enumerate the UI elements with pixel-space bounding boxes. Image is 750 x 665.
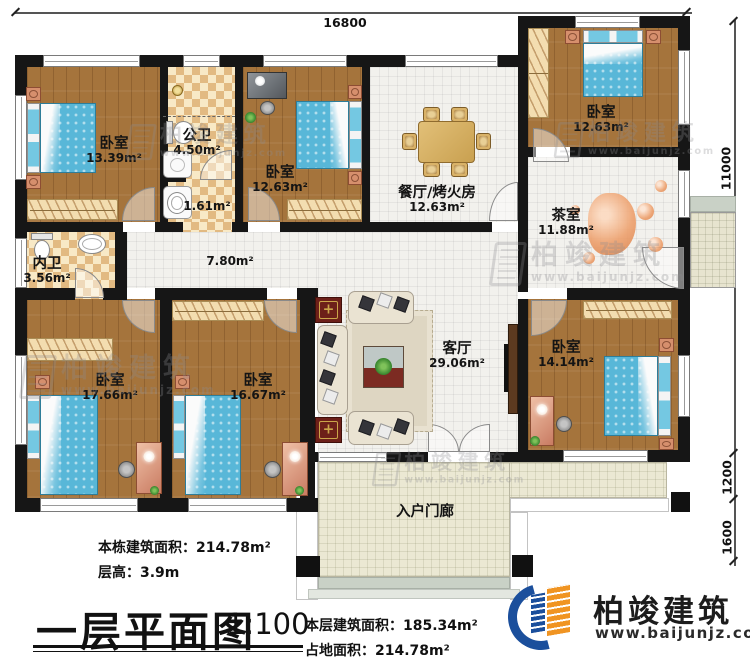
tea-room-decor: [655, 180, 667, 192]
wardrobe: [172, 301, 264, 321]
plant: [150, 486, 159, 495]
floor-side-balcony: [690, 212, 736, 288]
logo-building-blue-icon: [531, 593, 545, 633]
speaker-cabinet: [315, 297, 342, 323]
window: [43, 55, 140, 67]
watermark: 柏竣建筑 www.baijunjz.com: [492, 242, 686, 286]
top-dimension-line: [15, 12, 692, 14]
watermark-site: www.baijunjz.com: [160, 146, 287, 160]
bed-headboard: [583, 30, 643, 43]
plant: [245, 112, 256, 123]
chair: [260, 101, 275, 115]
watermark-logo-icon: [19, 355, 57, 399]
brand-logo: 柏竣建筑 www.baijunjz.com: [505, 572, 740, 662]
desk: [136, 442, 162, 494]
room-area: 3.56m²: [12, 272, 82, 285]
porch-front-label: 1600: [720, 517, 735, 559]
room-name: 茶室: [511, 208, 621, 224]
room-name: 内卫: [12, 256, 82, 272]
watermark-site: www.baijunjz.com: [531, 269, 686, 286]
room-label-hallway: 7.80m²: [175, 255, 285, 268]
window: [263, 55, 347, 67]
room-area: 12.63m²: [225, 181, 335, 194]
nightstand: [646, 30, 661, 44]
room-label-tea-room: 茶室 11.88m²: [511, 208, 621, 238]
wall: [232, 222, 248, 232]
room-area: 14.14m²: [511, 356, 621, 369]
dining-table: [418, 121, 475, 163]
watermark: 柏竣建筑 www.baijunjz.com: [556, 122, 715, 158]
wall: [155, 222, 183, 232]
floor-area-text: 本层建筑面积：185.34m²: [305, 615, 478, 635]
room-label-bedroom-tm: 卧室 12.63m²: [225, 165, 335, 195]
watermark-site: www.baijunjz.com: [61, 382, 216, 399]
shower-head-icon: [172, 85, 183, 96]
room-label-porch: 入户门廊: [370, 504, 480, 520]
wall: [567, 288, 690, 300]
title-underline: [33, 645, 303, 652]
window: [575, 16, 640, 28]
balcony-step: [690, 196, 736, 212]
watermark-logo-icon: [553, 122, 584, 158]
dining-chair: [402, 133, 417, 150]
porch-column: [296, 556, 320, 577]
watermark-name: 柏竣建筑: [531, 242, 686, 269]
window: [188, 498, 287, 512]
watermark: 柏竣建筑 www.baijunjz.com: [374, 452, 525, 486]
window: [678, 355, 690, 417]
window: [40, 498, 138, 512]
wall: [15, 222, 123, 232]
porch-depth-label: 1200: [720, 457, 735, 499]
room-label-bedroom-bm: 卧室 16.67m²: [203, 373, 313, 403]
wardrobe: [287, 199, 362, 220]
wall: [15, 288, 75, 300]
room-name: 客厅: [402, 341, 512, 357]
room-name: 餐厅/烤火房: [377, 185, 497, 201]
bed-headboard: [658, 356, 671, 436]
floor-plan-canvas: 16800 11000 1200 1600: [0, 0, 750, 665]
bed-headboard: [173, 395, 185, 459]
watermark-site: www.baijunjz.com: [404, 473, 525, 486]
wall: [280, 222, 370, 232]
room-label-inner-bath: 内卫 3.56m²: [12, 256, 82, 286]
tea-room-decor: [637, 203, 654, 220]
watermark-name: 柏竣建筑: [160, 124, 287, 146]
room-name: 卧室: [225, 165, 335, 181]
nightstand: [26, 175, 41, 189]
watermark-logo-icon: [489, 242, 527, 286]
coffee-table-plant: [375, 358, 392, 375]
nightstand: [659, 338, 674, 352]
porch-step: [318, 577, 510, 589]
chair: [118, 461, 135, 478]
wall: [370, 222, 492, 232]
speaker-cabinet: [315, 417, 342, 443]
dining-chair: [451, 107, 468, 122]
dining-chair: [423, 107, 440, 122]
nightstand: [659, 438, 674, 450]
room-name: 卧室: [546, 105, 656, 121]
room-area: 12.63m²: [377, 201, 497, 214]
nightstand: [565, 30, 580, 44]
plant: [295, 486, 304, 495]
room-name: 入户门廊: [370, 504, 480, 520]
footprint-area-text: 占地面积：214.78m²: [305, 640, 450, 660]
right-dimension-label: 11000: [719, 143, 734, 195]
room-area: 7.80m²: [175, 255, 285, 268]
wall: [362, 55, 370, 232]
nightstand: [348, 85, 362, 99]
bed-headboard: [27, 103, 40, 173]
watermark-logo-icon: [372, 452, 402, 486]
toilet: [31, 233, 53, 240]
porch-step-lower: [308, 589, 520, 599]
room-area: 16.67m²: [203, 389, 313, 402]
wall: [518, 299, 528, 462]
dining-chair: [476, 133, 491, 150]
bath-partition-dashed: [163, 116, 235, 117]
sink: [78, 234, 106, 254]
room-label-bedroom-br: 卧室 14.14m²: [511, 340, 621, 370]
room-name: 卧室: [203, 373, 313, 389]
room-name: 卧室: [511, 340, 621, 356]
watermark-name: 柏竣建筑: [404, 452, 525, 473]
scale-text: 1:100: [226, 607, 310, 641]
bed: [583, 43, 643, 97]
top-dimension-label: 16800: [310, 15, 380, 30]
watermark-name: 柏竣建筑: [588, 122, 715, 144]
room-area: 11.88m²: [511, 224, 621, 237]
room-area: 29.06m²: [402, 357, 512, 370]
brand-logo-icon: [505, 576, 585, 656]
brand-site: www.baijunjz.com: [595, 624, 750, 642]
window: [15, 95, 27, 180]
watermark-name: 柏竣建筑: [61, 355, 216, 382]
room-area: 1.61m²: [152, 200, 262, 213]
dining-chair: [451, 162, 468, 177]
porch-column: [671, 492, 690, 512]
plant: [530, 436, 540, 446]
floor-public-bath-doorway: [183, 222, 232, 232]
wardrobe: [27, 199, 118, 220]
room-label-living: 客厅 29.06m²: [402, 341, 512, 371]
window: [678, 50, 690, 125]
floor-height-text: 层高：3.9m: [98, 562, 179, 582]
wardrobe: [583, 301, 672, 319]
dining-chair: [423, 162, 440, 177]
watermark: 柏竣建筑 www.baijunjz.com: [22, 355, 216, 399]
chair: [556, 416, 572, 432]
window: [563, 450, 648, 462]
bed-headboard: [27, 395, 40, 459]
bed: [40, 395, 98, 495]
watermark-site: www.baijunjz.com: [588, 144, 715, 158]
window: [183, 55, 220, 67]
bed: [296, 101, 349, 169]
nightstand: [26, 87, 41, 101]
bed: [185, 395, 241, 495]
bed-headboard: [349, 101, 362, 169]
watermark-logo-icon: [125, 124, 156, 160]
wall: [115, 232, 127, 300]
logo-building-orange-icon: [547, 584, 570, 636]
window: [678, 170, 690, 218]
room-label-vanity: 1.61m²: [152, 200, 262, 213]
nightstand: [348, 171, 362, 185]
window: [405, 55, 498, 67]
desk: [247, 72, 287, 99]
building-area-text: 本栋建筑面积：214.78m²: [98, 537, 271, 557]
room-label-dining: 餐厅/烤火房 12.63m²: [377, 185, 497, 215]
porch-border-right: [510, 498, 669, 512]
chair: [264, 461, 281, 478]
watermark: 柏竣建筑 www.baijunjz.com: [128, 124, 287, 160]
